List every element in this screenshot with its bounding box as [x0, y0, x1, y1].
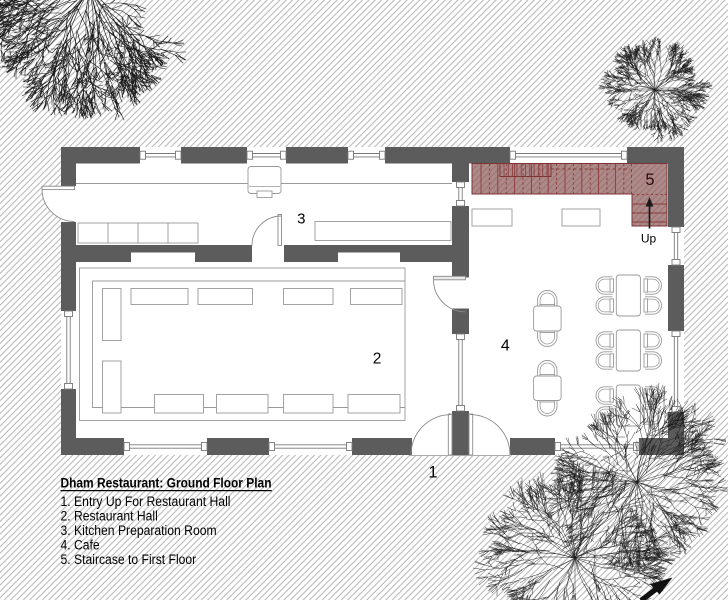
- svg-text:5. Staircase to First Floor: 5. Staircase to First Floor: [61, 552, 197, 567]
- svg-text:2: 2: [373, 350, 382, 367]
- svg-text:5: 5: [645, 171, 654, 189]
- svg-text:3: 3: [297, 210, 305, 227]
- svg-text:3. Kitchen Preparation Room: 3. Kitchen Preparation Room: [61, 523, 217, 538]
- svg-text:2. Restaurant Hall: 2. Restaurant Hall: [61, 509, 158, 524]
- svg-text:Dham Restaurant: Ground Floor: Dham Restaurant: Ground Floor Plan: [61, 476, 272, 491]
- svg-text:1. Entry Up For Restaurant Hal: 1. Entry Up For Restaurant Hall: [61, 494, 231, 509]
- svg-text:4: 4: [501, 338, 510, 355]
- svg-text:Up: Up: [641, 232, 657, 246]
- svg-text:4. Cafe: 4. Cafe: [61, 538, 100, 553]
- svg-text:1: 1: [428, 463, 437, 481]
